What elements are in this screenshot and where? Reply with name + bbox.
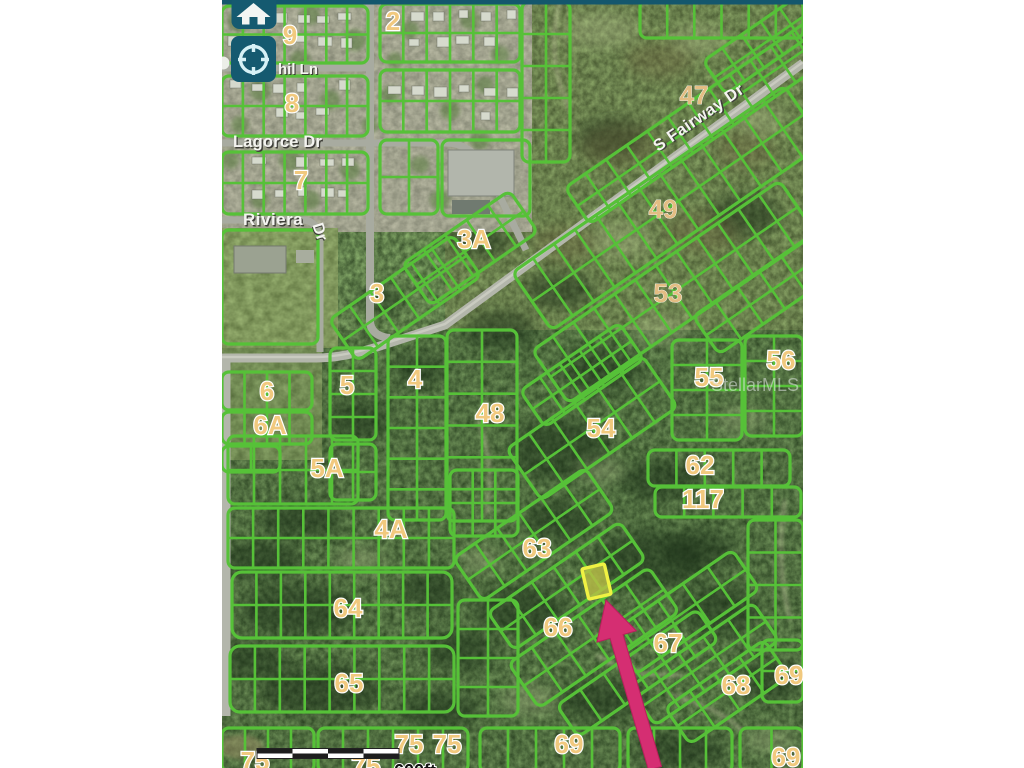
svg-text:69: 69 <box>772 742 801 768</box>
svg-text:47: 47 <box>680 80 709 110</box>
svg-text:hil Ln: hil Ln <box>278 61 318 78</box>
svg-text:66: 66 <box>544 612 573 642</box>
svg-text:Riviera: Riviera <box>243 210 303 229</box>
svg-text:62: 62 <box>686 450 715 480</box>
svg-text:56: 56 <box>767 345 796 375</box>
svg-text:68: 68 <box>722 670 751 700</box>
svg-text:49: 49 <box>649 194 678 224</box>
svg-text:2: 2 <box>386 6 400 36</box>
svg-text:4A: 4A <box>374 514 407 544</box>
svg-text:117: 117 <box>682 484 724 514</box>
svg-text:600ft: 600ft <box>394 761 436 768</box>
svg-text:5: 5 <box>340 370 354 400</box>
svg-text:48: 48 <box>476 398 505 428</box>
svg-text:75: 75 <box>433 729 462 759</box>
svg-text:StellarMLS: StellarMLS <box>711 375 799 395</box>
svg-text:5A: 5A <box>310 453 343 483</box>
svg-text:4: 4 <box>408 364 423 394</box>
svg-text:67: 67 <box>654 628 683 658</box>
svg-text:6: 6 <box>260 376 274 406</box>
svg-text:63: 63 <box>523 533 552 563</box>
svg-text:3A: 3A <box>457 224 490 254</box>
svg-text:9: 9 <box>283 20 297 50</box>
svg-text:69: 69 <box>555 729 584 759</box>
svg-text:7: 7 <box>294 165 308 195</box>
svg-text:8: 8 <box>285 88 299 118</box>
svg-text:54: 54 <box>587 413 616 443</box>
svg-text:3: 3 <box>370 278 384 308</box>
svg-text:69: 69 <box>775 660 804 690</box>
svg-text:65: 65 <box>335 668 364 698</box>
svg-text:53: 53 <box>654 278 683 308</box>
svg-text:64: 64 <box>334 593 363 623</box>
svg-text:Lagorce Dr: Lagorce Dr <box>233 133 322 151</box>
svg-text:6A: 6A <box>253 410 286 440</box>
